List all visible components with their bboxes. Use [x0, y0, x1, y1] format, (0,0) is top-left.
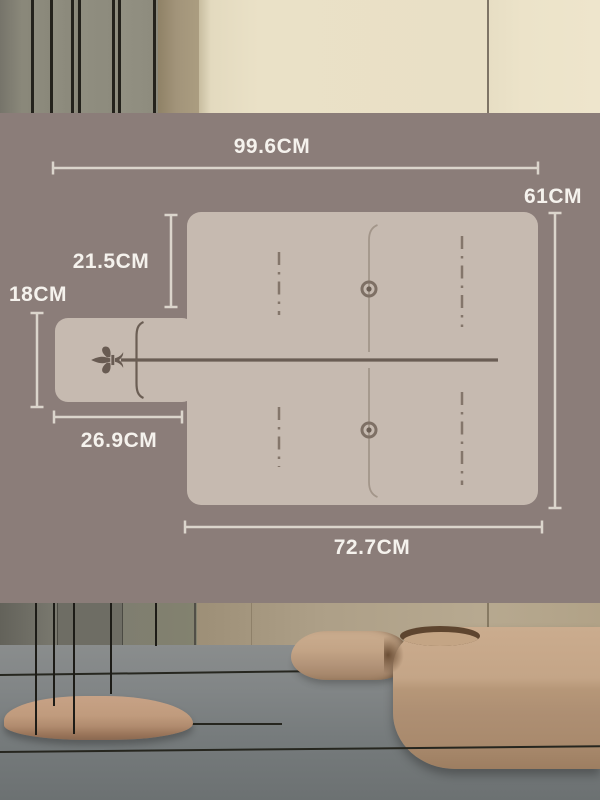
dim-handle-height — [31, 313, 44, 407]
dim-board-height — [549, 213, 562, 508]
label-handle-length: 26.9CM — [44, 430, 194, 451]
label-handle-height: 18CM — [0, 284, 88, 305]
label-top-to-handle: 21.5CM — [41, 251, 181, 272]
dim-board-width — [185, 521, 542, 534]
label-total-width: 99.6CM — [192, 136, 352, 157]
label-board-height: 61CM — [505, 186, 600, 207]
dim-total-width — [53, 162, 538, 175]
dim-handle-length — [54, 411, 182, 424]
label-board-width: 72.7CM — [292, 537, 452, 558]
product-size-chart-image: 99.6CM 61CM 21.5CM 18CM 26.9CM 72.7CM — [0, 0, 600, 800]
dimension-diagram — [0, 0, 600, 800]
